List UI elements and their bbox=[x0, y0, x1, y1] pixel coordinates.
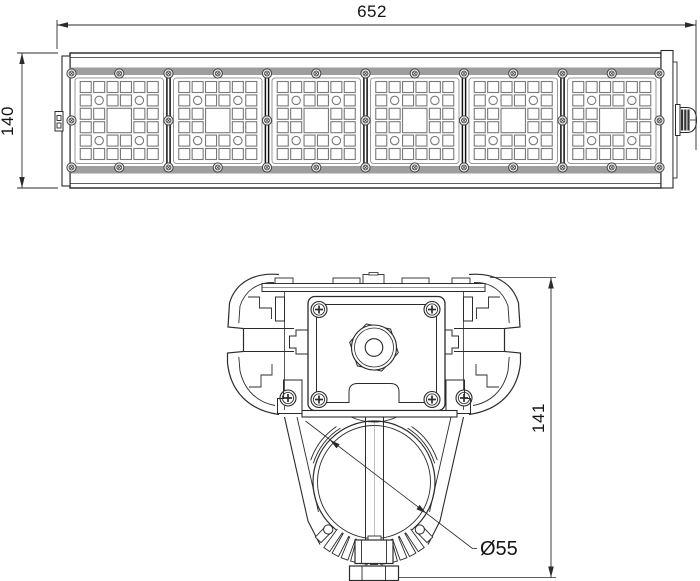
clamp-bar bbox=[302, 411, 457, 418]
plate-screw bbox=[311, 302, 327, 318]
frame-screw bbox=[262, 116, 271, 125]
dim-length-label: 652 bbox=[357, 2, 387, 21]
frame-screw bbox=[655, 69, 664, 78]
frame-screw bbox=[410, 163, 419, 172]
frame-screw bbox=[115, 163, 124, 172]
frame-screw bbox=[509, 163, 518, 172]
channel-step bbox=[290, 330, 309, 354]
dim-arrow-top bbox=[19, 53, 24, 64]
plate-screw bbox=[311, 392, 327, 408]
frame-screw bbox=[361, 163, 370, 172]
keyhole-bulb bbox=[415, 525, 424, 534]
frame-screw bbox=[459, 116, 468, 125]
gland-knurl bbox=[684, 110, 686, 131]
frame-screw bbox=[67, 69, 76, 78]
top-tab bbox=[402, 278, 429, 284]
frame-screw bbox=[459, 163, 468, 172]
gland-flange bbox=[676, 105, 681, 136]
frame-screw bbox=[509, 69, 518, 78]
frame-screw bbox=[164, 69, 173, 78]
cable-gland bbox=[676, 105, 697, 136]
frame-screw bbox=[312, 163, 321, 172]
dim-arrow-left bbox=[57, 22, 68, 27]
section-view: 141 Ø55 bbox=[228, 273, 557, 581]
profile-wing-right bbox=[440, 274, 521, 414]
top-tab bbox=[333, 278, 360, 284]
top-tab bbox=[275, 278, 293, 284]
frame-screw bbox=[361, 116, 370, 125]
bolt-block bbox=[355, 540, 393, 564]
wing-outer bbox=[228, 274, 280, 414]
dim-height: 140 bbox=[0, 53, 58, 188]
dim-section-height-label: 141 bbox=[529, 403, 548, 433]
frame-screw bbox=[213, 69, 222, 78]
dim-arrow-right bbox=[685, 22, 696, 27]
keyhole-bulb bbox=[324, 525, 333, 534]
front-view: 652 140 bbox=[0, 2, 697, 188]
section-view-body bbox=[228, 273, 521, 581]
front-view-body bbox=[55, 51, 697, 189]
frame-screw bbox=[558, 163, 567, 172]
frame-screw bbox=[67, 163, 76, 172]
frame-screw bbox=[164, 163, 173, 172]
frame-screw bbox=[164, 116, 173, 125]
frame-screw bbox=[655, 116, 664, 125]
frame-screw bbox=[459, 69, 468, 78]
technical-drawing: 652 140 141 Ø55 bbox=[0, 0, 700, 581]
plate-screw bbox=[424, 392, 440, 408]
dim-arrow-top bbox=[548, 278, 554, 289]
profile-wing-left bbox=[228, 274, 309, 414]
knob-hole bbox=[365, 339, 383, 357]
frame-screw bbox=[655, 163, 664, 172]
gland-knurl bbox=[681, 110, 683, 131]
frame-screw bbox=[115, 69, 124, 78]
dim-arrow-bottom bbox=[19, 177, 24, 188]
frame-screw bbox=[558, 116, 567, 125]
bolt-nut bbox=[350, 566, 399, 581]
pipe-circle-outer bbox=[313, 421, 435, 543]
plate-screw bbox=[424, 302, 440, 318]
dim-height-label: 140 bbox=[0, 106, 17, 136]
top-tab-center bbox=[363, 275, 384, 284]
top-tab bbox=[452, 278, 470, 284]
frame-screw bbox=[558, 69, 567, 78]
frame-screw bbox=[607, 163, 616, 172]
frame-screw bbox=[361, 69, 370, 78]
dim-arrow-bottom bbox=[548, 567, 554, 578]
top-tab-nub bbox=[369, 273, 378, 276]
drawing-canvas: 652 140 141 Ø55 bbox=[0, 0, 700, 581]
frame-screw bbox=[67, 116, 76, 125]
clamp-arm-right bbox=[428, 417, 464, 545]
gland-knurl bbox=[687, 110, 689, 131]
frame-screw bbox=[213, 163, 222, 172]
frame-screw bbox=[607, 69, 616, 78]
dim-diameter-label: Ø55 bbox=[480, 538, 518, 560]
frame-screw bbox=[262, 69, 271, 78]
clamp-bolt bbox=[350, 536, 399, 581]
frame-screw bbox=[262, 163, 271, 172]
clamp-arm-left bbox=[285, 417, 321, 545]
frame-screw bbox=[312, 69, 321, 78]
frame-screw bbox=[410, 69, 419, 78]
wing-outer bbox=[469, 274, 521, 414]
